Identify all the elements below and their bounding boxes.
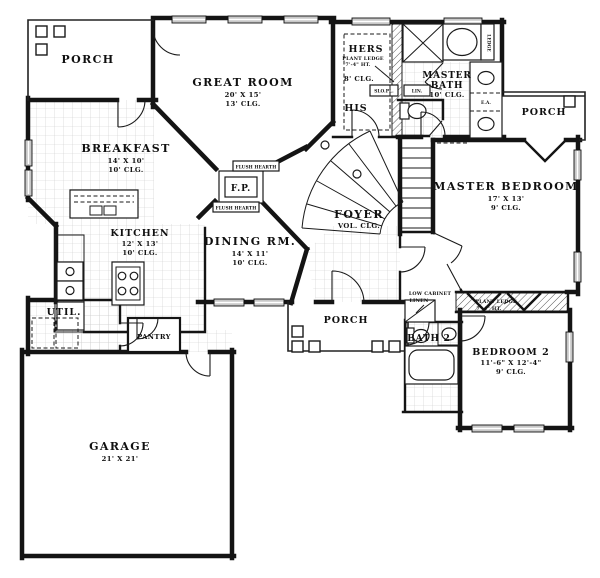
master-tub bbox=[447, 29, 477, 56]
label-dining-clg: 10' CLG. bbox=[232, 259, 267, 267]
label-master-bedroom-clg: 9' CLG. bbox=[491, 204, 521, 212]
label-low-cabinet-1: LOW CABINET bbox=[409, 291, 451, 297]
label-bedroom2-dim: 11'-6" X 12'-4" bbox=[480, 359, 541, 367]
label-utility: UTIL. bbox=[47, 307, 82, 318]
porch-post bbox=[54, 26, 65, 37]
label-breakfast-clg: 10' CLG. bbox=[108, 166, 143, 174]
label-hers: HERS bbox=[349, 44, 384, 55]
label-bedroom2: BEDROOM 2 bbox=[472, 347, 549, 358]
label-his: HIS bbox=[344, 103, 367, 114]
burner bbox=[118, 272, 126, 280]
label-flush-hearth-bottom: FLUSH HEARTH bbox=[216, 207, 257, 212]
wall-garage bbox=[22, 350, 234, 558]
label-kitchen: KITCHEN bbox=[110, 228, 169, 239]
label-hers-clg: 8' CLG. bbox=[344, 75, 374, 83]
door-garage bbox=[186, 352, 210, 376]
label-foyer-clg: VOL. CLG. bbox=[337, 222, 380, 230]
label-porch-bottom: PORCH bbox=[324, 315, 369, 326]
label-dining: DINING RM. bbox=[204, 235, 296, 248]
label-bedroom2-ledge-1: PLANT LEDGE bbox=[475, 299, 517, 305]
label-breakfast: BREAKFAST bbox=[81, 142, 170, 155]
label-kitchen-dim: 12' X 13' bbox=[122, 240, 159, 248]
label-slope-plate: SLO.PL. bbox=[374, 90, 394, 95]
bath2-tub bbox=[409, 350, 454, 380]
label-linen-abbr: LIN. bbox=[412, 90, 423, 95]
label-master-bedroom-dim: 17' X 13' bbox=[488, 195, 525, 203]
stair-treads-straight bbox=[402, 148, 431, 228]
label-flush-hearth-top: FLUSH HEARTH bbox=[236, 166, 277, 171]
label-hers-ledge-2: 7'-4" HT. bbox=[345, 62, 370, 68]
label-bedroom2-clg: 9' CLG. bbox=[496, 368, 526, 376]
porch-post bbox=[292, 341, 303, 352]
oven-dial bbox=[66, 268, 74, 276]
oven-dial bbox=[66, 287, 74, 295]
label-master-bath-2: BATH bbox=[431, 81, 464, 91]
floor-plan-page: PORCH GREAT ROOM 20' X 15' 13' CLG. HERS… bbox=[0, 0, 600, 578]
label-porch-right: PORCH bbox=[522, 107, 567, 118]
label-master-bath-clg: 10' CLG. bbox=[429, 91, 464, 99]
floor-plan-svg: PORCH GREAT ROOM 20' X 15' 13' CLG. HERS… bbox=[0, 0, 600, 578]
porch-post bbox=[36, 44, 47, 55]
label-pantry: PANTRY bbox=[137, 333, 171, 341]
kitchen-island bbox=[112, 262, 144, 305]
label-low-cabinet-2: LINEN bbox=[409, 298, 428, 304]
door-master-double bbox=[434, 233, 462, 290]
sink bbox=[478, 72, 494, 85]
porch-post bbox=[36, 26, 47, 37]
porch-post bbox=[389, 341, 400, 352]
newel-post bbox=[353, 170, 361, 178]
label-great-room-clg: 13' CLG. bbox=[225, 100, 260, 108]
porch-post bbox=[372, 341, 383, 352]
label-garage: GARAGE bbox=[89, 440, 151, 453]
toilet bbox=[408, 104, 426, 119]
label-ledge: LEDGE bbox=[486, 34, 491, 52]
sink bbox=[478, 118, 494, 131]
label-kitchen-clg: 10' CLG. bbox=[122, 249, 157, 257]
label-bedroom2-ledge-2: 7'-4" HT. bbox=[476, 306, 501, 312]
porch-post bbox=[292, 326, 303, 337]
label-great-room-dim: 20' X 15' bbox=[225, 91, 262, 99]
porch-post bbox=[309, 341, 320, 352]
label-master-bath-1: MASTER bbox=[422, 71, 471, 81]
label-foyer: FOYER bbox=[334, 208, 384, 221]
label-garage-dim: 21' X 21' bbox=[102, 455, 139, 463]
burner bbox=[130, 287, 138, 295]
arch-great-room bbox=[153, 28, 180, 55]
bay-chevron-master-top bbox=[524, 140, 566, 161]
porch-post bbox=[564, 96, 575, 107]
label-bath2: BATH 2 bbox=[407, 334, 451, 344]
door-foyer-closet bbox=[400, 247, 425, 272]
label-dining-dim: 14' X 11' bbox=[232, 250, 269, 258]
label-porch-top-left: PORCH bbox=[61, 53, 114, 66]
burner bbox=[130, 272, 138, 280]
leader-hers-ledge bbox=[375, 66, 394, 82]
newel-post bbox=[321, 141, 329, 149]
label-master-bedroom: MASTER BEDROOM bbox=[433, 180, 579, 193]
label-breakfast-dim: 14' X 10' bbox=[108, 157, 145, 165]
door-bedroom2 bbox=[460, 316, 485, 341]
burner bbox=[118, 287, 126, 295]
label-fireplace: F.P. bbox=[231, 184, 251, 194]
label-great-room: GREAT ROOM bbox=[192, 76, 293, 89]
label-ea: E.A. bbox=[481, 101, 491, 106]
foyer-floor bbox=[306, 226, 400, 302]
